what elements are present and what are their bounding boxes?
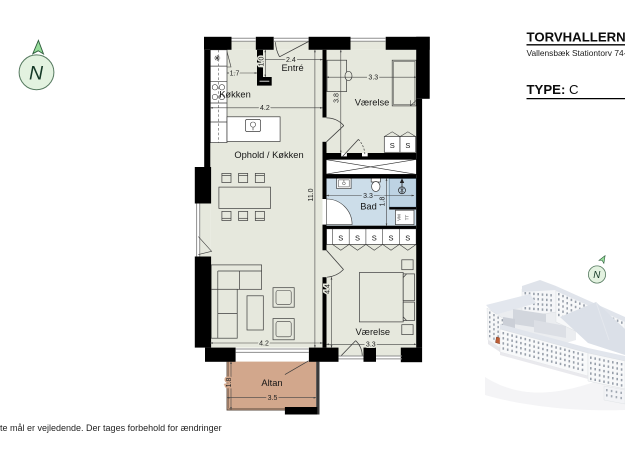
svg-text:1.8: 1.8	[226, 378, 233, 388]
svg-text:1.8: 1.8	[380, 197, 387, 207]
svg-text:3.3: 3.3	[363, 193, 373, 200]
svg-text:3.3: 3.3	[368, 75, 378, 82]
svg-text:Entré: Entré	[281, 63, 303, 73]
svg-text:S: S	[372, 233, 377, 242]
svg-text:3.8: 3.8	[334, 93, 341, 103]
svg-text:S: S	[405, 233, 410, 242]
svg-text:Vallensbæk Stationtorv 74-76: Vallensbæk Stationtorv 74-76	[527, 48, 625, 58]
svg-text:3.3: 3.3	[366, 342, 376, 349]
svg-text:1.0: 1.0	[259, 57, 266, 67]
svg-text:S: S	[390, 141, 395, 150]
svg-text:Køkken: Køkken	[219, 89, 251, 99]
svg-text:S: S	[388, 233, 393, 242]
svg-text:TYPE: C: TYPE: C	[527, 82, 580, 97]
svg-text:4.4: 4.4	[325, 284, 332, 294]
svg-text:S: S	[338, 233, 343, 242]
svg-text:N: N	[29, 63, 44, 85]
svg-text:S: S	[405, 141, 410, 150]
svg-text:11.0: 11.0	[308, 188, 315, 201]
svg-text:4.2: 4.2	[259, 340, 269, 347]
svg-text:Værelse: Værelse	[355, 327, 390, 337]
svg-text:TT: TT	[405, 215, 410, 221]
svg-text:S: S	[355, 233, 360, 242]
svg-text:4.2: 4.2	[260, 105, 270, 112]
svg-text:Bad: Bad	[360, 202, 377, 212]
svg-text:Værelse: Værelse	[355, 97, 390, 107]
svg-text:te mål er vejledende. Der tage: te mål er vejledende. Der tages forbehol…	[0, 423, 222, 433]
svg-text:1.7: 1.7	[230, 70, 240, 77]
svg-text:VM: VM	[397, 214, 402, 221]
svg-text:3.5: 3.5	[268, 395, 278, 402]
svg-text:Ophold / Køkken: Ophold / Køkken	[234, 150, 303, 160]
svg-text:N: N	[593, 270, 601, 281]
svg-text:Altan: Altan	[261, 378, 282, 388]
svg-text:TORVHALLERNE: TORVHALLERNE	[527, 30, 625, 45]
